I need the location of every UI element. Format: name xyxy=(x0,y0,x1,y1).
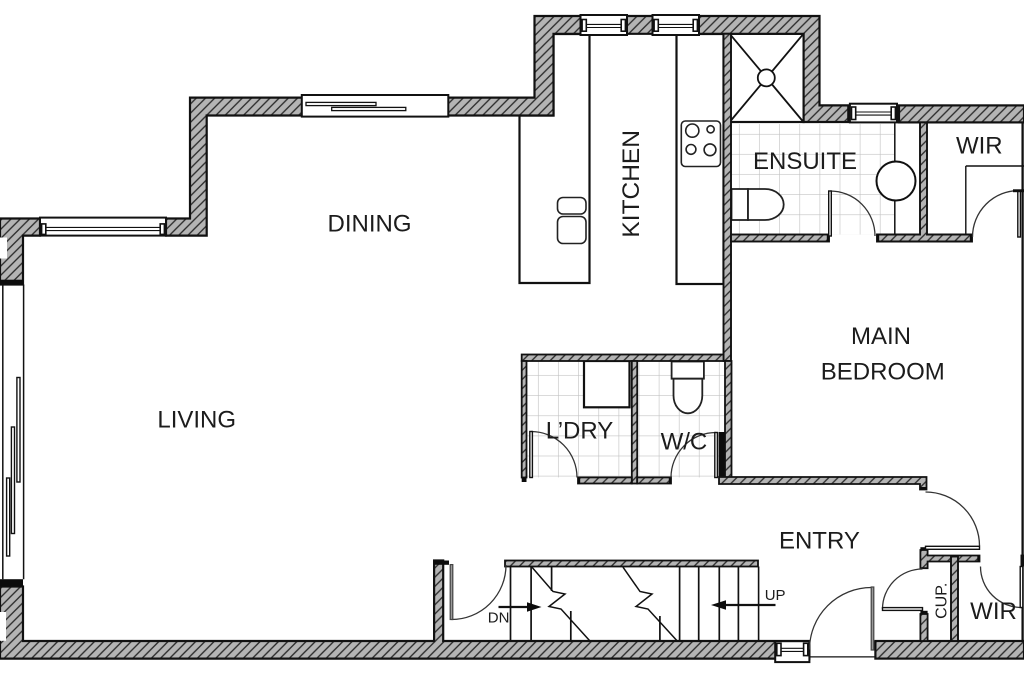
svg-text:CUP.: CUP. xyxy=(933,583,950,619)
svg-text:UP: UP xyxy=(765,587,786,604)
svg-text:MAIN: MAIN xyxy=(851,323,911,350)
svg-text:W/C: W/C xyxy=(661,429,708,456)
svg-text:L’DRY: L’DRY xyxy=(546,418,614,445)
svg-text:KITCHEN: KITCHEN xyxy=(618,130,645,238)
svg-text:ENTRY: ENTRY xyxy=(779,528,860,555)
svg-text:DINING: DINING xyxy=(328,211,412,238)
svg-text:BEDROOM: BEDROOM xyxy=(821,359,945,386)
svg-text:DN: DN xyxy=(488,610,510,627)
svg-text:LIVING: LIVING xyxy=(157,407,236,434)
svg-text:ENSUITE: ENSUITE xyxy=(753,148,857,175)
svg-text:WIR: WIR xyxy=(956,133,1003,160)
svg-text:WIR: WIR xyxy=(970,598,1017,625)
